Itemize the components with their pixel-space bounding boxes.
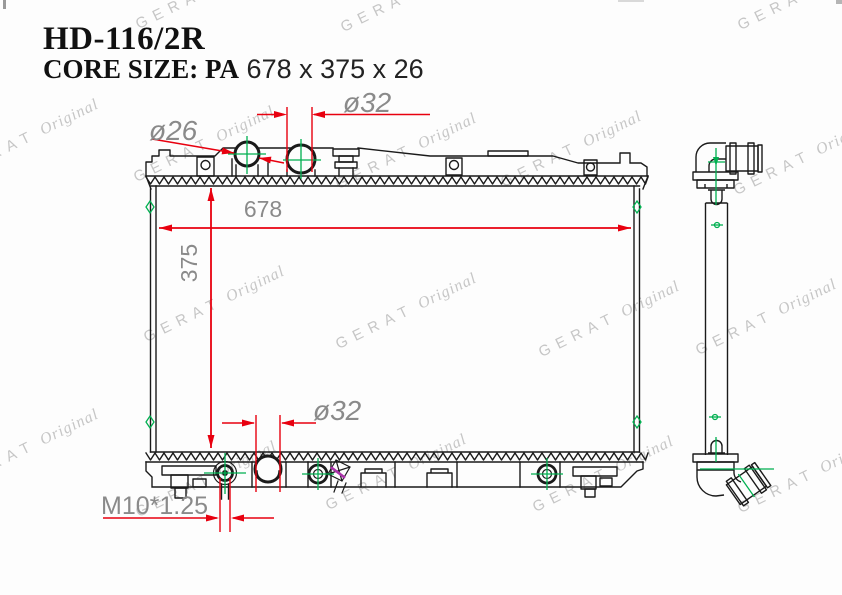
dim-core-width [159,225,631,232]
tank-feet [361,469,452,487]
dim-label-height: 375 [176,244,202,282]
dim-core-height [208,188,215,448]
dimension-annotations [103,107,631,532]
mount-bracket [333,149,359,156]
tank-notch [488,151,528,156]
front-view [146,142,648,499]
dim-label-dia26: ø26 [149,115,198,146]
radiator-drawing-page: GERATOriginalGERATOriginalGERATOriginalG… [0,0,842,595]
radiator-technical-drawing: ø26 ø32 678 375 ø32 M10*1.25 [0,0,842,595]
side-view [693,143,771,507]
centerlines [146,136,774,494]
core [146,176,648,460]
dim-label-width: 678 [244,196,282,222]
dim-label-dia32-top: ø32 [343,87,392,118]
dim-label-dia32-bottom: ø32 [313,395,362,426]
core-fins-top [146,177,648,184]
dim-label-drain-thread: M10*1.25 [101,492,208,520]
bottom-bracket [573,467,617,476]
upper-hose-elbow [696,143,762,174]
core-fins-bottom [146,453,648,460]
top-tank [146,142,648,176]
